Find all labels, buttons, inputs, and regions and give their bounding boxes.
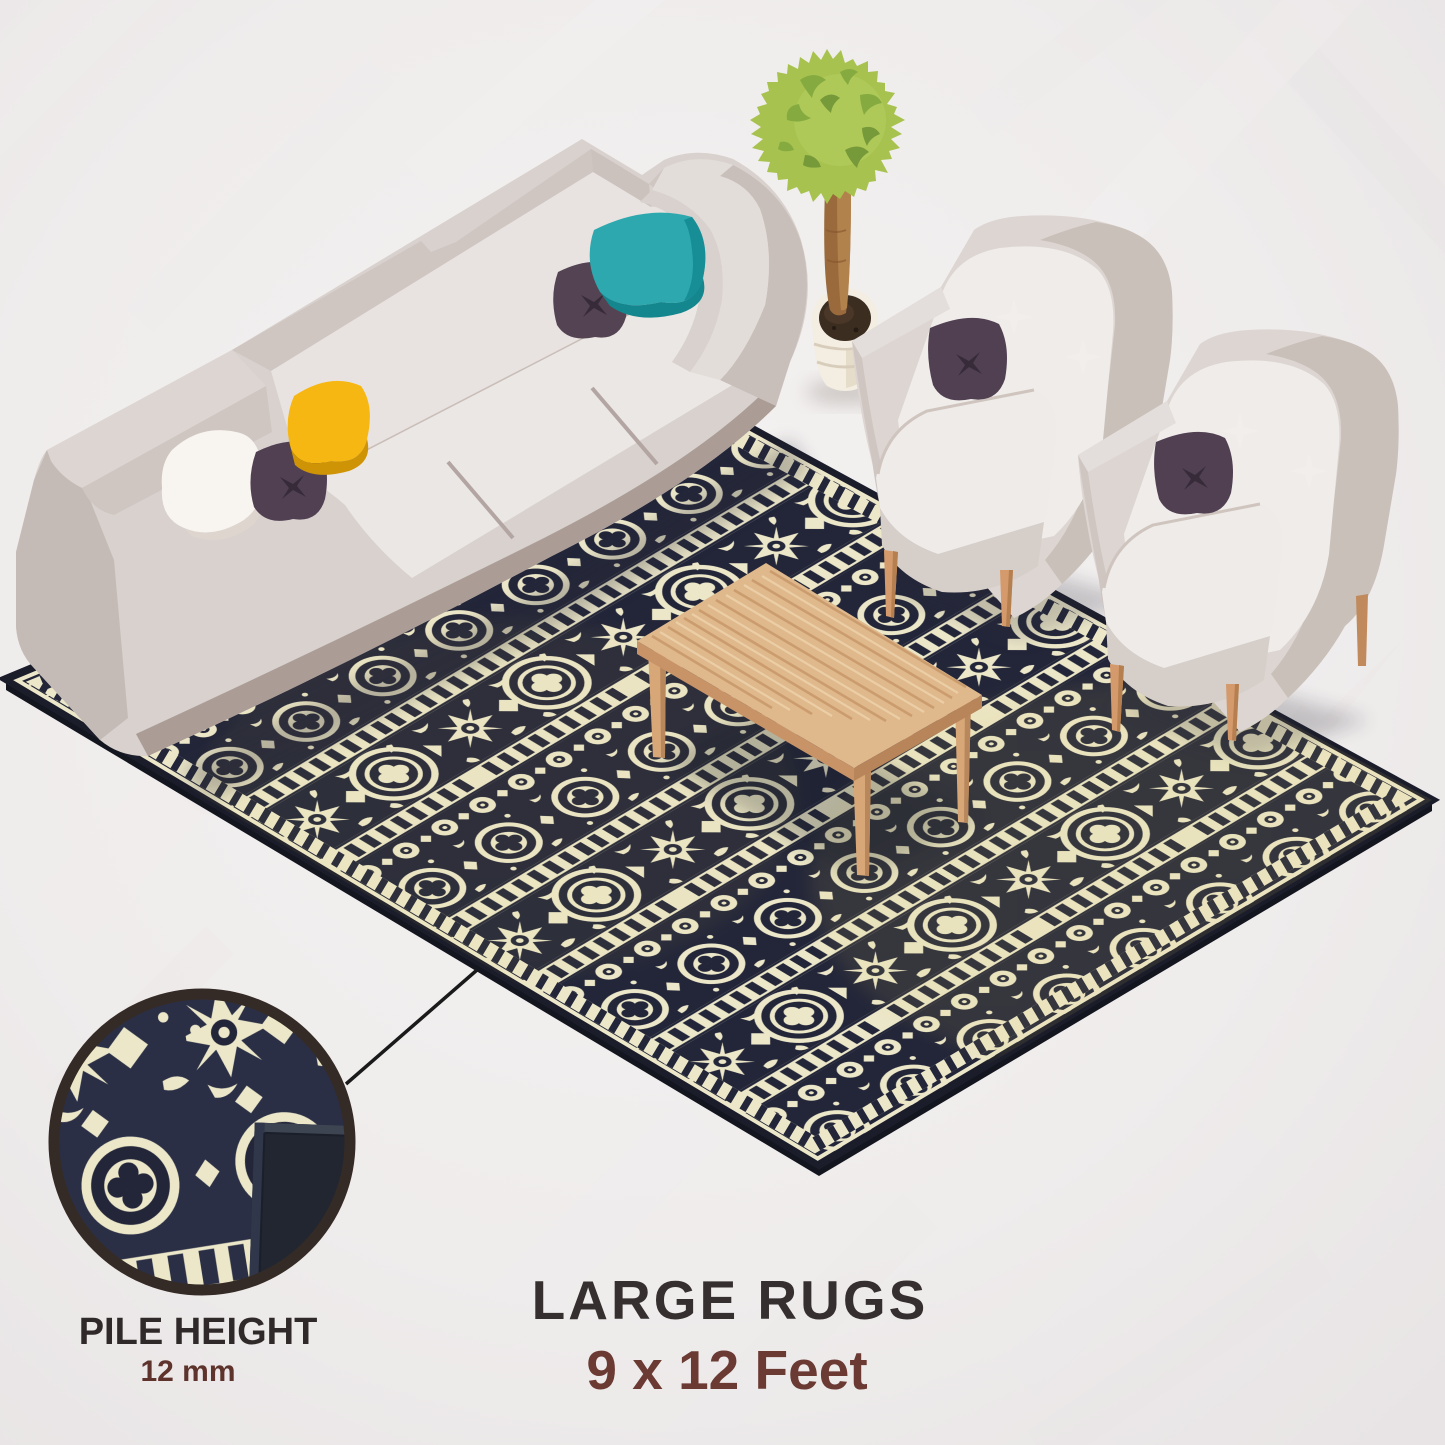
svg-text:LARGE RUGS: LARGE RUGS bbox=[532, 1269, 929, 1331]
svg-text:PILE HEIGHT: PILE HEIGHT bbox=[79, 1311, 318, 1353]
svg-text:9 x 12 Feet: 9 x 12 Feet bbox=[586, 1339, 867, 1401]
svg-text:12 mm: 12 mm bbox=[140, 1355, 235, 1388]
